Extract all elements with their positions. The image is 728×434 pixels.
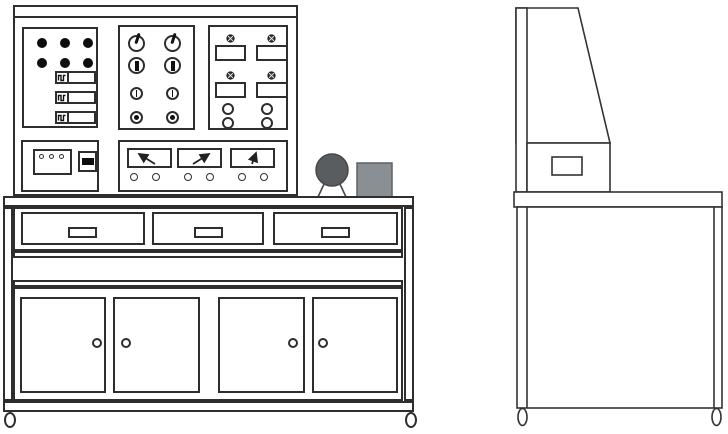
pointer-knob-icon [164,35,181,52]
terminal [260,173,268,181]
meter-needle-up [232,150,273,166]
dot-knob-icon [130,111,143,124]
terminal [261,103,273,115]
meter-window [256,82,288,98]
breaker-wave-icon [57,93,67,102]
line-knob-icon [166,87,179,100]
analog-meter [127,148,172,168]
door-knob [92,338,102,348]
drawer-handle [68,227,97,238]
bench-rail-upper [13,251,403,258]
terminal [152,173,160,181]
side-back-panel [516,8,527,192]
meter-window [256,45,288,61]
bench-top [3,196,414,207]
drawer-handle [194,227,223,238]
worktop-devices [310,150,395,198]
terminal [238,173,246,181]
side-bench-top [514,192,722,207]
terminal [222,103,234,115]
bar-knob-icon [128,57,145,74]
meter-needle-up-left [129,150,170,166]
bench-rail-lower [13,280,403,287]
dot-knob-icon [166,111,179,124]
control-box-icon [357,163,392,197]
breaker-wave-icon [57,73,67,82]
drawer-handle [321,227,350,238]
socket-block [33,149,72,175]
switch-divider [67,93,69,102]
circled-cross-lamp-icon [226,71,235,80]
caster-wheel [712,409,721,426]
meter-needle-up-right [179,150,220,166]
socket-pin [59,154,64,159]
bench-right-post [404,207,414,401]
circled-cross-lamp-icon [267,71,276,80]
terminal [184,173,192,181]
analog-meter [177,148,222,168]
terminal [261,117,273,129]
meter-window [215,82,246,98]
workbench-technical-drawing [0,0,728,434]
switch-divider [67,113,69,122]
pointer-knob-icon [128,35,145,52]
bar-knob-icon [164,57,181,74]
terminal [130,173,138,181]
meter-window [215,45,246,61]
indicator-light [60,58,70,68]
motor-icon [316,154,348,186]
side-handle-cutout [552,157,582,175]
caster-wheel [4,412,16,428]
side-view [500,0,728,434]
indicator-light [83,38,93,48]
breaker-switch [55,111,96,124]
side-cabinet-body [517,207,722,408]
terminal [206,173,214,181]
console-header-line [15,16,296,18]
switch-divider [67,73,69,82]
breaker-wave-icon [57,113,67,122]
line-knob-icon [130,87,143,100]
door-knob [121,338,131,348]
display-panel [208,25,288,130]
breaker-switch [55,91,96,104]
indicator-light [83,58,93,68]
caster-wheel [405,412,417,428]
bench-base-rail [3,401,414,412]
side-console-profile [516,8,610,143]
rocker-switch-bar [82,158,94,165]
door-knob [288,338,298,348]
indicator-light [37,38,47,48]
circled-cross-lamp-icon [267,34,276,43]
indicator-light [60,38,70,48]
breaker-switch [55,71,96,84]
terminal [222,117,234,129]
indicator-light [37,58,47,68]
door-knob [318,338,328,348]
bench-left-post [3,207,13,401]
socket-pin [39,154,44,159]
caster-wheel [518,409,527,426]
socket-pin [49,154,54,159]
analog-meter [230,148,275,168]
circled-cross-lamp-icon [226,34,235,43]
